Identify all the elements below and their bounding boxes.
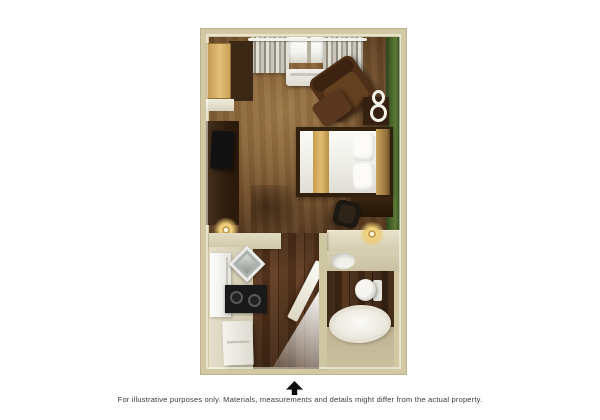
pillow <box>352 162 375 191</box>
curtain-rod <box>248 38 367 41</box>
closet-panel <box>206 43 231 99</box>
headboard <box>376 129 390 195</box>
scroll-loop-bottom <box>370 104 387 122</box>
pillow <box>353 133 376 162</box>
disclaimer-caption: For illustrative purposes only. Material… <box>0 395 600 404</box>
burner-icon <box>248 294 261 307</box>
desk-lamp-icon <box>359 221 385 247</box>
lamp-bulb <box>368 230 376 238</box>
floor-plan <box>200 28 407 375</box>
tv-icon <box>210 130 234 169</box>
vanity-sink <box>331 253 355 269</box>
scroll-loop-top <box>372 90 385 105</box>
scroll-lamp-icon <box>369 89 389 125</box>
closet-shelf <box>206 99 234 111</box>
base-cabinet <box>222 320 254 365</box>
north-arrow-icon <box>286 381 303 395</box>
toilet-bowl <box>355 279 376 301</box>
bathroom-separating-wall <box>319 233 327 369</box>
burner-icon <box>230 291 243 304</box>
closet-interior <box>229 41 253 101</box>
floor-plan-canvas: For illustrative purposes only. Material… <box>0 0 600 420</box>
stove-cooktop <box>225 285 267 313</box>
curtain-left <box>251 37 289 73</box>
bed-runner <box>313 131 329 193</box>
